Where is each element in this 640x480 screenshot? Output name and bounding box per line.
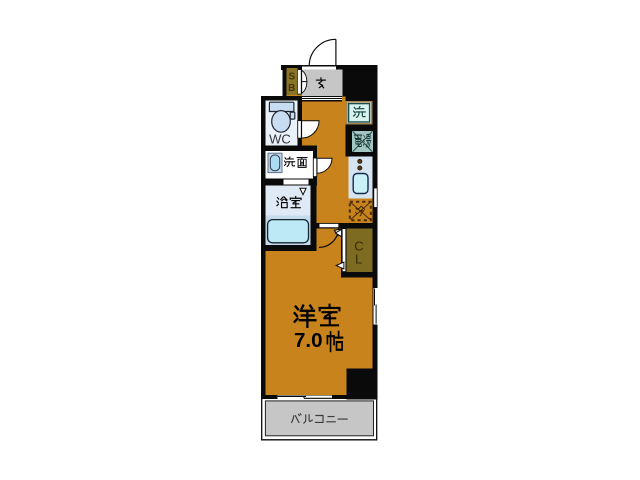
svg-text:L: L	[355, 252, 362, 267]
svg-text:B: B	[288, 83, 295, 94]
svg-text:WC: WC	[269, 131, 291, 146]
svg-text:7.0: 7.0	[294, 329, 323, 352]
svg-text:S: S	[288, 72, 295, 83]
